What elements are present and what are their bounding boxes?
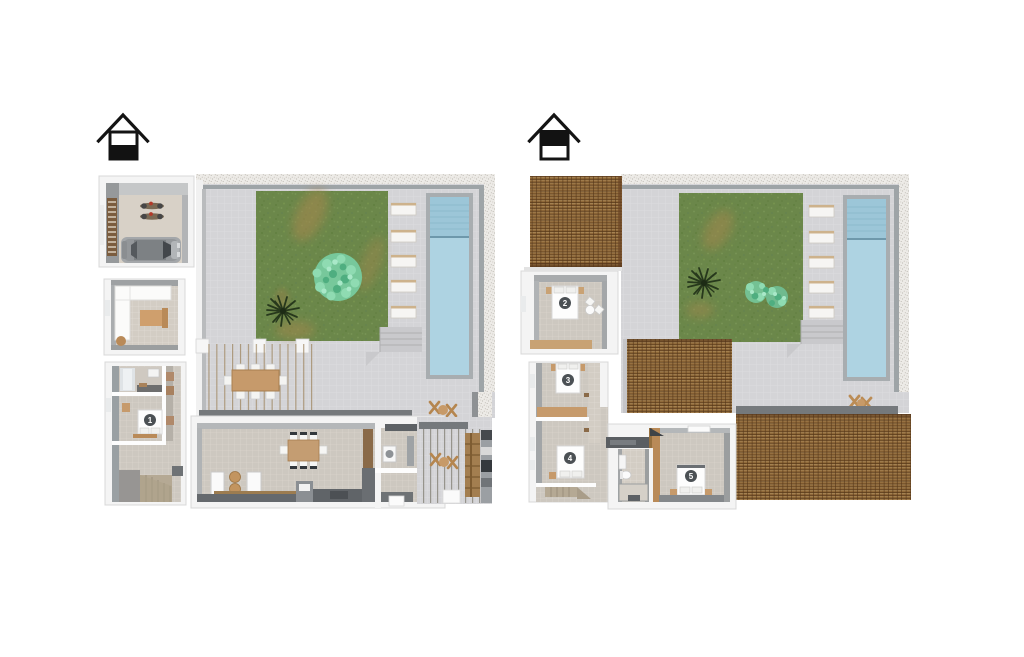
svg-text:1: 1	[148, 416, 153, 425]
svg-text:4: 4	[568, 454, 573, 463]
svg-text:2: 2	[563, 299, 568, 308]
svg-text:3: 3	[566, 376, 571, 385]
svg-text:5: 5	[689, 472, 694, 481]
